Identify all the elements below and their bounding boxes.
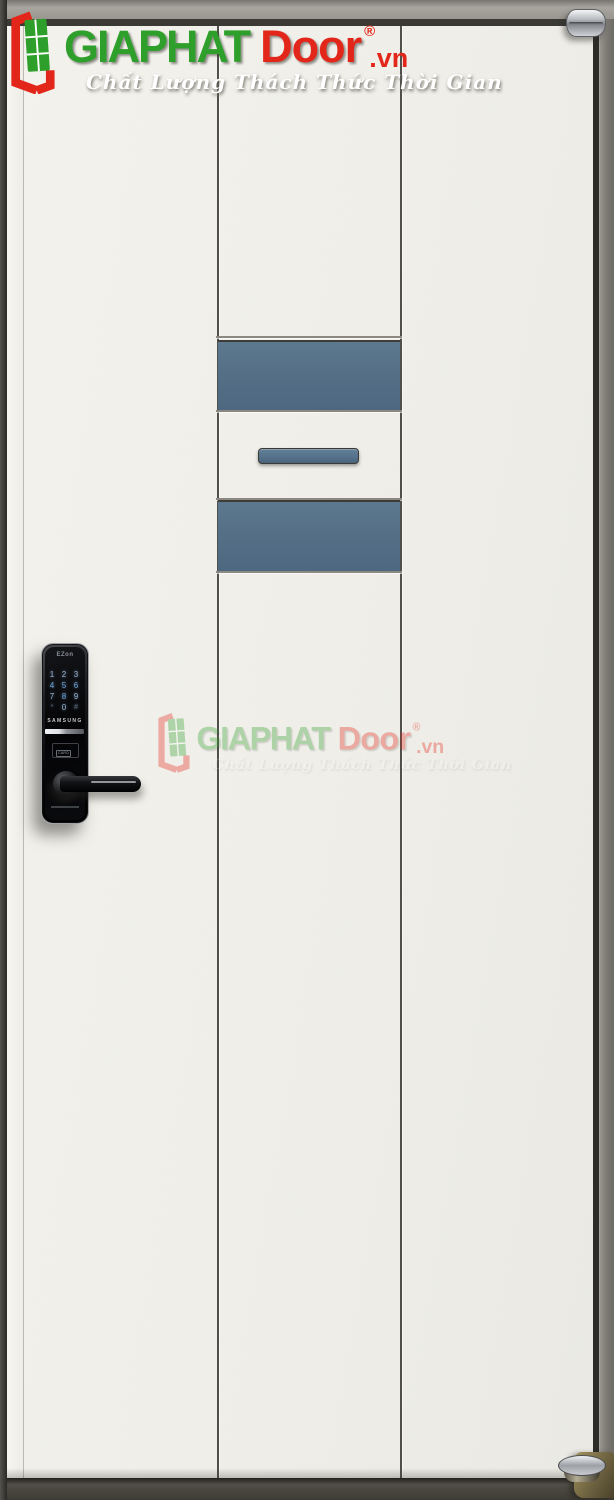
brand-domain-suffix: .vn [416, 737, 444, 756]
smart-lock: EZon 1 2 3 4 5 6 7 8 9 * 0 # SAMSUNG CAR… [30, 630, 155, 840]
door-product-photo: GIAPHAT Door ® .vn Chất Lượng Thách Thức… [0, 0, 614, 1500]
brand-door-icon [8, 10, 56, 94]
lock-keypad: 1 2 3 4 5 6 7 8 9 * 0 # [46, 669, 84, 713]
recessed-handle-bar [258, 448, 359, 464]
lock-brand-small: EZon [42, 652, 88, 658]
keypad-key: * [51, 704, 54, 711]
brand-name-secondary: Door [338, 722, 411, 754]
keypad-key: 5 [62, 681, 66, 690]
accent-panel-lower [218, 500, 400, 573]
keypad-key: 9 [74, 692, 78, 701]
watermark-logo: GIAPHAT Door ® .vn Chất Lượng Thách Thức… [156, 712, 473, 784]
brand-door-icon [156, 712, 191, 772]
lock-lever-handle [60, 776, 141, 792]
center-rail-line [216, 336, 402, 338]
accent-panel-upper [218, 340, 400, 412]
brand-name-primary: GIAPHAT [64, 24, 249, 69]
brand-tagline: Chất Lượng Thách Thức Thời Gian [212, 755, 512, 772]
bottom-pivot-cap-icon [558, 1455, 606, 1476]
keypad-key: # [74, 704, 78, 711]
keypad-key: 7 [50, 692, 54, 701]
door-frame-right [599, 0, 614, 1500]
keypad-key: 1 [50, 670, 54, 679]
brand-domain-suffix: .vn [369, 45, 408, 72]
card-label: CARD [56, 750, 71, 757]
keypad-key: 2 [62, 670, 66, 679]
brand-tagline: Chất Lượng Thách Thức Thời Gian [86, 70, 503, 94]
keypad-key: 0 [62, 703, 66, 712]
lock-silver-strip [45, 729, 84, 734]
keypad-key: 3 [74, 670, 78, 679]
center-rail-line [216, 410, 402, 412]
door-frame-bottom [0, 1478, 614, 1500]
door-frame-left [0, 0, 7, 1500]
lock-brand-label: SAMSUNG [42, 718, 88, 724]
keypad-key: 6 [74, 681, 78, 690]
card-reader: CARD [52, 743, 79, 758]
keypad-key: 8 [62, 692, 66, 701]
keypad-key: 4 [50, 681, 54, 690]
registered-mark: ® [364, 24, 375, 39]
registered-mark: ® [412, 722, 420, 733]
center-rail-line [216, 571, 402, 573]
lock-model-text-blur [51, 806, 79, 808]
brand-name-secondary: Door [260, 24, 361, 69]
top-hinge-icon [566, 9, 606, 37]
brand-name-primary: GIAPHAT [196, 722, 329, 754]
brand-logo: GIAPHAT Door ® .vn Chất Lượng Thách Thức… [8, 10, 448, 110]
